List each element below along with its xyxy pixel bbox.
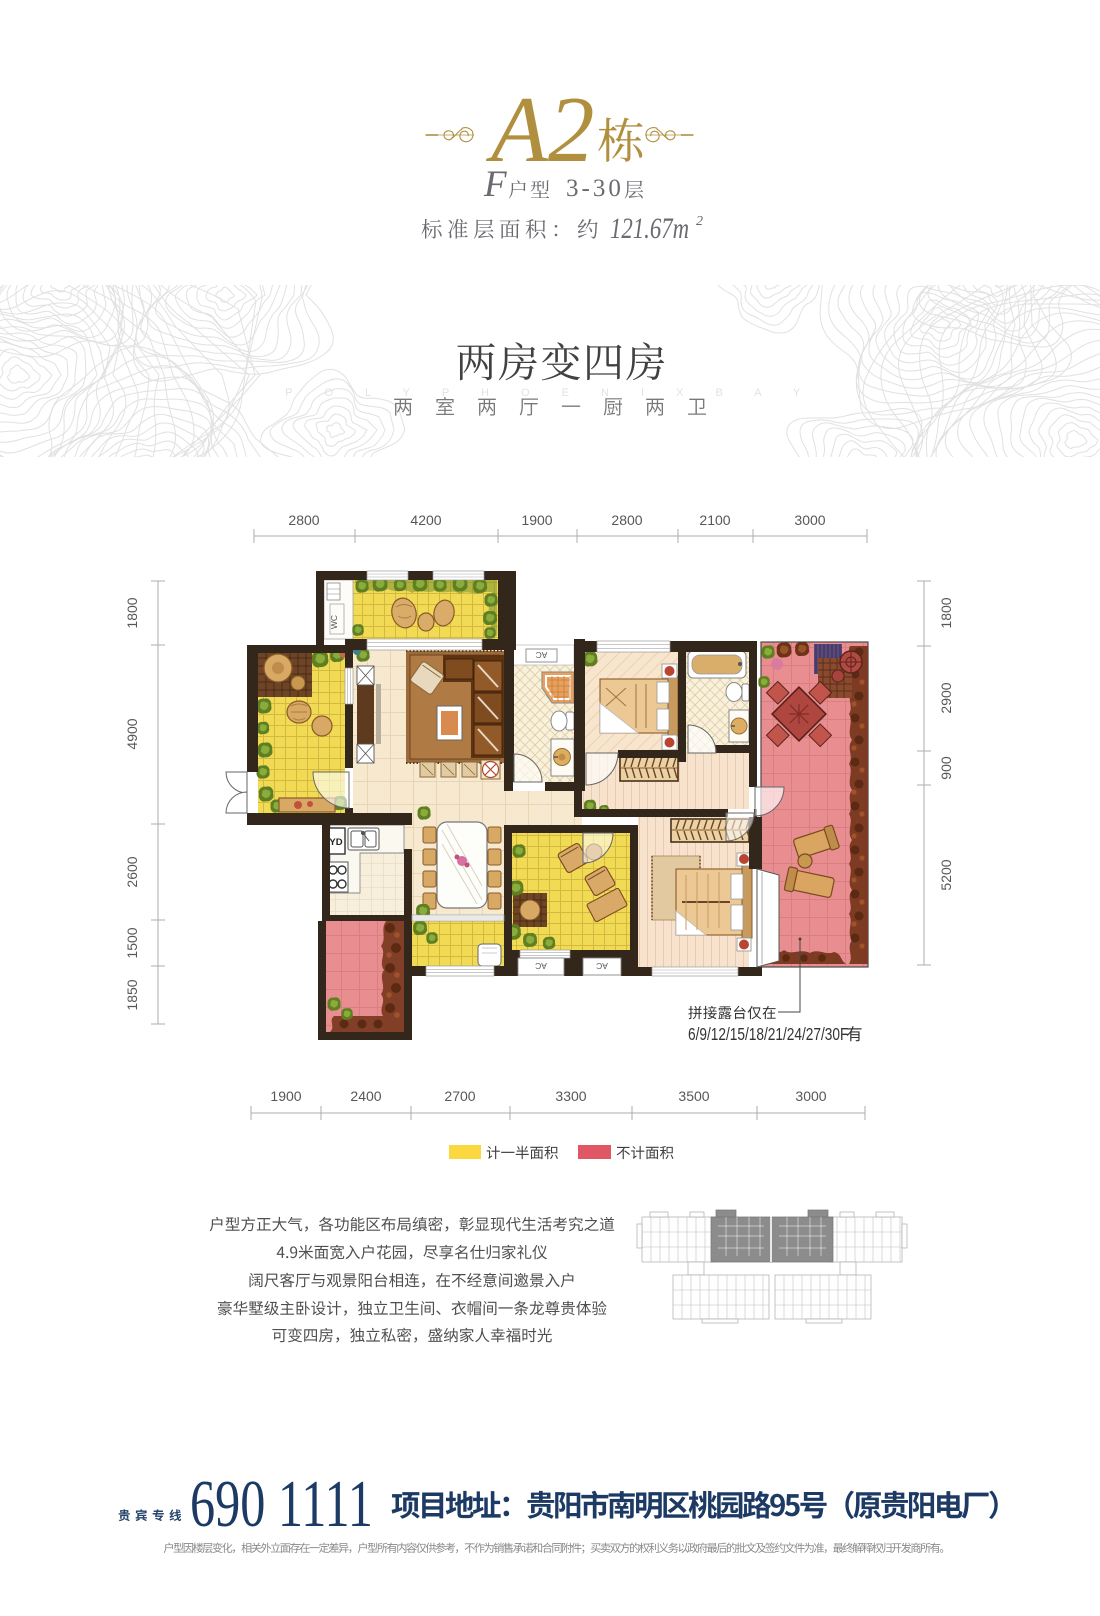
svg-text:F: F xyxy=(483,164,507,205)
svg-text:900: 900 xyxy=(938,756,954,780)
svg-text:1900: 1900 xyxy=(521,512,552,528)
svg-text:AC: AC xyxy=(596,961,608,971)
svg-text:2800: 2800 xyxy=(288,512,319,528)
svg-text:121.67m: 121.67m xyxy=(610,211,689,245)
svg-text:6/9/12/15/18/21/24/27/30F: 6/9/12/15/18/21/24/27/30F xyxy=(688,1025,849,1044)
svg-text:P O L Y P H O E N I X B A Y: P O L Y P H O E N I X B A Y xyxy=(285,387,814,399)
svg-text:2400: 2400 xyxy=(350,1088,381,1104)
svg-text:3300: 3300 xyxy=(555,1088,586,1104)
svg-text:2800: 2800 xyxy=(611,512,642,528)
svg-text:2: 2 xyxy=(696,214,703,229)
svg-text:4900: 4900 xyxy=(124,718,140,749)
svg-text:3000: 3000 xyxy=(794,512,825,528)
svg-text:YD: YD xyxy=(329,837,342,848)
svg-text:2100: 2100 xyxy=(699,512,730,528)
svg-text:1850: 1850 xyxy=(124,979,140,1010)
svg-text:AC: AC xyxy=(536,650,548,660)
svg-text:3500: 3500 xyxy=(678,1088,709,1104)
svg-text:3-30: 3-30 xyxy=(566,175,624,202)
svg-text:1900: 1900 xyxy=(270,1088,301,1104)
svg-text:WC: WC xyxy=(329,615,339,629)
svg-text:5200: 5200 xyxy=(938,859,954,890)
svg-text:3000: 3000 xyxy=(795,1088,826,1104)
svg-text:2900: 2900 xyxy=(938,682,954,713)
svg-text:AC: AC xyxy=(535,961,547,971)
svg-text:2700: 2700 xyxy=(444,1088,475,1104)
svg-text:2600: 2600 xyxy=(124,856,140,887)
svg-text:690 1111: 690 1111 xyxy=(190,1466,373,1541)
svg-text:1500: 1500 xyxy=(124,927,140,958)
svg-text:1800: 1800 xyxy=(124,597,140,628)
svg-text:1800: 1800 xyxy=(938,597,954,628)
svg-text:4200: 4200 xyxy=(410,512,441,528)
